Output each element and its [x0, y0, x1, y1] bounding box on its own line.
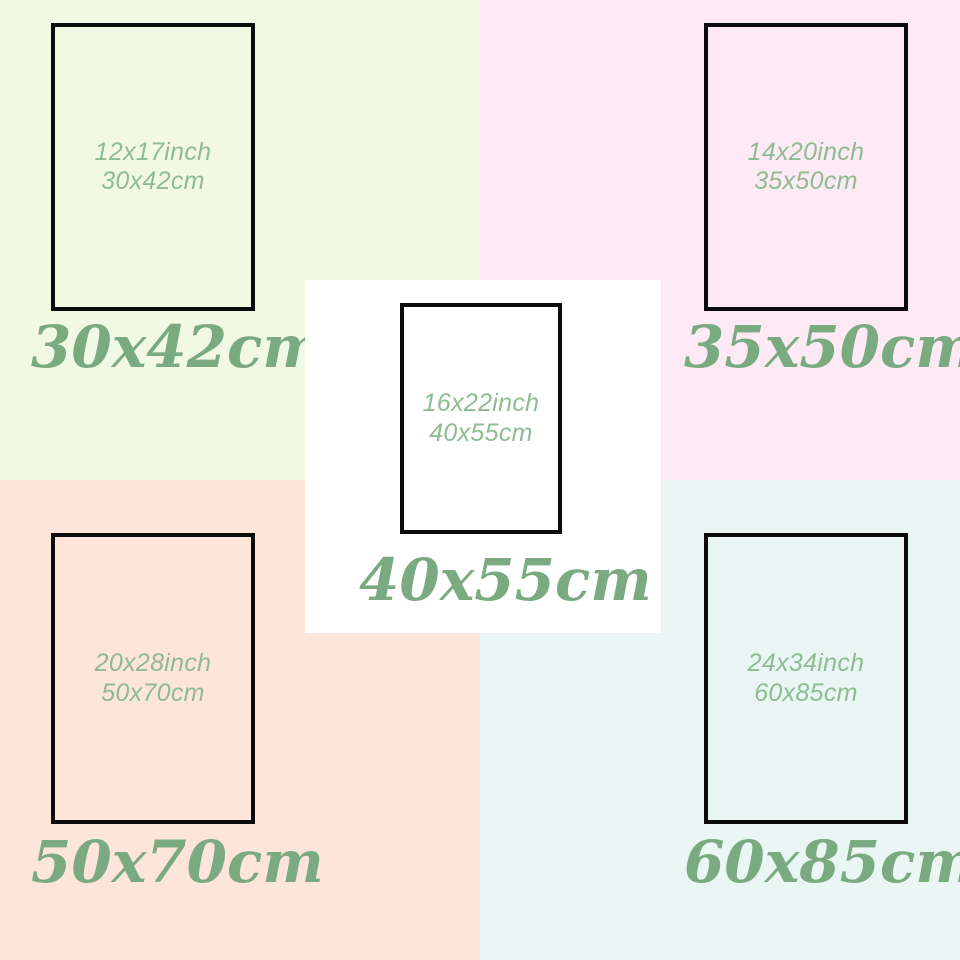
size-label-30x42: 30x42cm — [31, 316, 275, 380]
size-cm-60x85: 60x85cm — [748, 679, 865, 709]
size-label-35x50: 35x50cm — [684, 316, 928, 380]
poster-frame-35x50: 14x20inch 35x50cm — [704, 23, 908, 311]
poster-frame-50x70: 20x28inch 50x70cm — [51, 533, 255, 824]
size-label-60x85: 60x85cm — [684, 831, 928, 895]
size-inch-60x85: 24x34inch — [748, 649, 865, 679]
size-chart: 12x17inch 30x42cm 30x42cm 14x20inch 35x5… — [0, 0, 960, 960]
size-inch-35x50: 14x20inch — [748, 138, 865, 168]
poster-frame-40x55: 16x22inch 40x55cm — [400, 303, 562, 534]
size-cm-40x55: 40x55cm — [423, 419, 540, 449]
frame-size-text-40x55: 16x22inch 40x55cm — [423, 389, 540, 448]
frame-size-text-50x70: 20x28inch 50x70cm — [95, 649, 212, 708]
size-inch-30x42: 12x17inch — [95, 138, 212, 168]
size-label-50x70: 50x70cm — [31, 831, 275, 895]
size-label-40x55: 40x55cm — [359, 549, 603, 613]
frame-size-text-30x42: 12x17inch 30x42cm — [95, 138, 212, 197]
size-cm-30x42: 30x42cm — [95, 167, 212, 197]
size-cm-35x50: 35x50cm — [748, 167, 865, 197]
panel-40x55: 16x22inch 40x55cm 40x55cm — [305, 280, 661, 633]
frame-size-text-35x50: 14x20inch 35x50cm — [748, 138, 865, 197]
frame-size-text-60x85: 24x34inch 60x85cm — [748, 649, 865, 708]
size-inch-40x55: 16x22inch — [423, 389, 540, 419]
poster-frame-60x85: 24x34inch 60x85cm — [704, 533, 908, 824]
poster-frame-30x42: 12x17inch 30x42cm — [51, 23, 255, 311]
size-cm-50x70: 50x70cm — [95, 679, 212, 709]
size-inch-50x70: 20x28inch — [95, 649, 212, 679]
